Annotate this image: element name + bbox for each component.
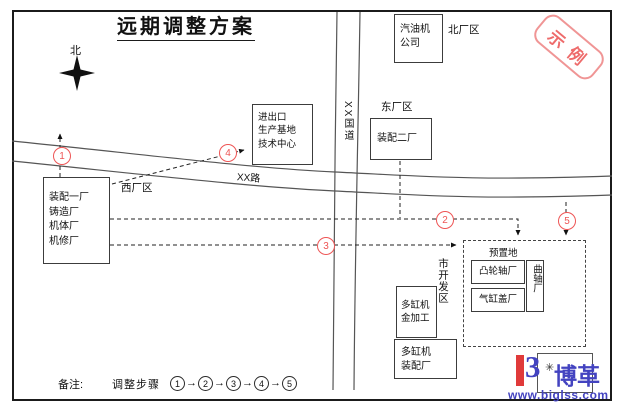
step-marker-5: 5 (558, 212, 576, 230)
north-district-label: 北厂区 (448, 22, 480, 37)
diagram-canvas: 远期调整方案 北 示例 汽油机 公司 北厂区 进出口 生产基地 技术中心 东厂区… (0, 0, 620, 406)
crankshaft-plant-box: 曲轴厂 (526, 260, 544, 312)
import-export-base-box: 进出口 生产基地 技术中心 (252, 104, 313, 165)
logo-asterisk-icon: ✳ (545, 361, 554, 374)
note-steps-label: 调整步骤 (112, 376, 160, 392)
page-title: 远期调整方案 (117, 10, 255, 41)
north-label: 北 (70, 42, 81, 58)
east-district-label: 东厂区 (381, 99, 413, 114)
xx-road-label: XX路 (237, 168, 261, 185)
logo-name: 博革 (554, 357, 600, 391)
cylinder-head-plant-box: 气缸盖厂 (471, 288, 525, 312)
city-development-zone-label: 市开发区 (436, 258, 451, 304)
note-label: 备注: (58, 376, 83, 392)
west-district-label: 西厂区 (121, 180, 153, 195)
assembly-plant2-box: 装配二厂 (370, 118, 432, 160)
west-plants-group-box: 装配一厂 铸造厂 机体厂 机修厂 (43, 177, 110, 264)
step-marker-1: 1 (53, 147, 71, 165)
logo-b-glyph: 3 (525, 349, 541, 385)
step2-move-arrow (110, 219, 518, 235)
logo-red-bar-icon (516, 355, 524, 386)
step-marker-3: 3 (317, 237, 335, 255)
step-marker-2: 2 (436, 211, 454, 229)
step-marker-4: 4 (219, 144, 237, 162)
reserved-land-label: 预置地 (489, 245, 518, 259)
vertical-road-right-edge (354, 12, 360, 390)
multi-cylinder-assembly-box: 多缸机 装配厂 (394, 339, 457, 379)
xx-highway-label: XX国道 (340, 101, 355, 142)
biglss-logo: 3 ✳ 博革 www.biglss.com (508, 351, 612, 403)
gasoline-company-box: 汽油机 公司 (394, 14, 443, 63)
north-compass-icon (59, 55, 95, 91)
logo-url: www.biglss.com (508, 388, 609, 402)
camshaft-plant-box: 凸轮轴厂 (471, 260, 525, 284)
multi-cylinder-machining-box: 多缸机 金加工 (396, 286, 437, 338)
vertical-road-left-edge (333, 12, 337, 390)
